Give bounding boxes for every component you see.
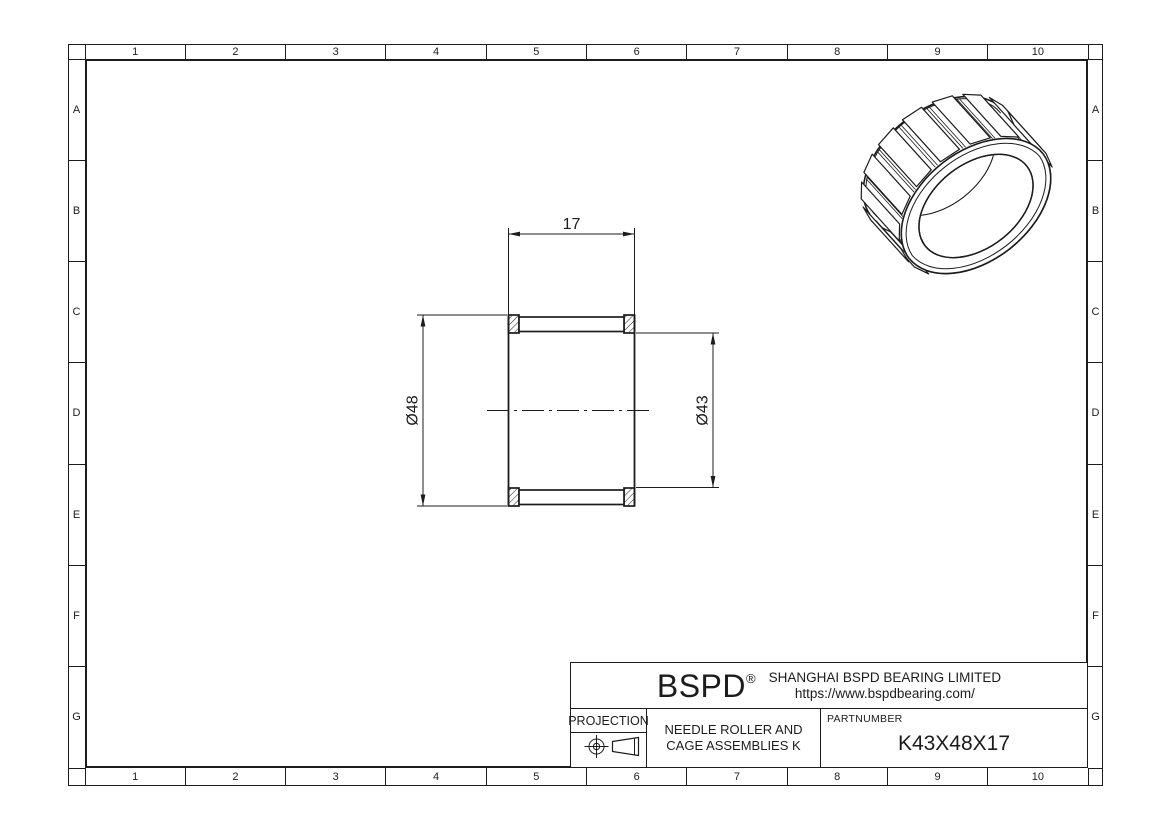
width-dim-text: 17	[563, 216, 581, 233]
company-block: SHANGHAI BSPD BEARING LIMITED https://ww…	[769, 670, 1002, 702]
cage-rail-section	[624, 315, 635, 333]
cage-rail-section	[509, 488, 520, 506]
grid-tick	[1088, 261, 1103, 262]
grid-row-label-right: G	[1088, 667, 1103, 768]
grid-tick	[385, 768, 386, 786]
grid-tick	[68, 464, 85, 465]
arrowhead	[711, 476, 716, 488]
grid-tick	[85, 768, 86, 786]
grid-col-label-bottom: 5	[486, 768, 586, 786]
grid-col-label-top: 6	[587, 44, 687, 59]
grid-col-label-bottom: 8	[787, 768, 887, 786]
title-block: BSPD® SHANGHAI BSPD BEARING LIMITED http…	[570, 662, 1088, 768]
company-website: https://www.bspdbearing.com/	[769, 686, 1002, 702]
cage-rail-section	[624, 488, 635, 506]
arrowhead	[711, 333, 716, 345]
description-line2: CAGE ASSEMBLIES K	[666, 738, 800, 755]
grid-tick	[1088, 59, 1103, 60]
grid-tick	[1088, 666, 1103, 667]
grid-col-label-top: 8	[787, 44, 887, 59]
grid-tick	[68, 666, 85, 667]
grid-col-label-top: 10	[988, 44, 1088, 59]
grid-col-label-top: 7	[687, 44, 787, 59]
grid-tick	[586, 768, 587, 786]
grid-tick	[68, 565, 85, 566]
width-dimension: 17	[509, 216, 635, 315]
grid-tick	[887, 44, 888, 59]
grid-tick	[285, 44, 286, 59]
grid-tick	[1088, 44, 1089, 59]
grid-tick	[1088, 768, 1103, 769]
grid-row-label-left: F	[68, 565, 85, 666]
grid-tick	[185, 768, 186, 786]
grid-row-label-left: G	[68, 667, 85, 768]
arrowhead	[421, 495, 426, 507]
isometric-bearing-view	[845, 75, 1060, 290]
grid-tick	[686, 768, 687, 786]
grid-tick	[385, 44, 386, 59]
partnumber-value: K43X48X17	[821, 732, 1087, 756]
grid-col-label-bottom: 10	[988, 768, 1088, 786]
grid-tick	[1088, 160, 1103, 161]
grid-tick	[85, 44, 86, 59]
grid-row-label-right: A	[1088, 59, 1103, 160]
grid-tick	[486, 768, 487, 786]
grid-col-label-bottom: 9	[887, 768, 987, 786]
partnumber-cell: PARTNUMBER K43X48X17	[821, 709, 1087, 767]
grid-col-label-bottom: 7	[687, 768, 787, 786]
needle-roller-section	[519, 317, 624, 332]
registered-trademark: ®	[746, 671, 756, 686]
grid-col-label-top: 3	[286, 44, 386, 59]
grid-col-label-top: 5	[486, 44, 586, 59]
grid-tick	[586, 44, 587, 59]
arrowhead	[623, 232, 635, 237]
grid-col-label-top: 2	[185, 44, 285, 59]
brand-logo: BSPD®	[657, 670, 756, 702]
grid-tick	[1088, 565, 1103, 566]
grid-tick	[1088, 768, 1089, 786]
grid-col-label-top: 4	[386, 44, 486, 59]
grid-tick	[68, 59, 85, 60]
grid-row-label-left: B	[68, 160, 85, 261]
brand-text: BSPD	[657, 668, 746, 704]
description-line1: NEEDLE ROLLER AND	[665, 722, 803, 739]
grid-row-label-right: E	[1088, 464, 1103, 565]
cage-rail-section	[509, 315, 520, 333]
inner-dia-text: Ø43	[695, 395, 712, 425]
section-view-2d: 17 Ø48 Ø43	[395, 210, 735, 520]
grid-col-label-bottom: 6	[587, 768, 687, 786]
grid-tick	[787, 44, 788, 59]
grid-tick	[285, 768, 286, 786]
arrowhead	[421, 315, 426, 327]
grid-tick	[1088, 362, 1103, 363]
grid-tick	[68, 768, 85, 769]
grid-row-label-left: A	[68, 59, 85, 160]
grid-col-label-bottom: 2	[185, 768, 285, 786]
company-name: SHANGHAI BSPD BEARING LIMITED	[769, 670, 1002, 686]
grid-row-label-right: C	[1088, 262, 1103, 363]
projection-symbol-cell	[571, 733, 646, 767]
grid-tick	[68, 362, 85, 363]
grid-col-label-top: 9	[887, 44, 987, 59]
first-angle-projection-icon	[571, 733, 644, 762]
grid-row-label-right: B	[1088, 160, 1103, 261]
grid-tick	[185, 44, 186, 59]
grid-row-label-right: D	[1088, 363, 1103, 464]
projection-cell: PROJECTION	[571, 709, 647, 767]
grid-col-label-top: 1	[85, 44, 185, 59]
grid-row-label-left: D	[68, 363, 85, 464]
grid-tick	[987, 768, 988, 786]
partnumber-label: PARTNUMBER	[827, 713, 903, 725]
grid-tick	[987, 44, 988, 59]
outer-dia-text: Ø48	[405, 395, 422, 425]
needle-roller-section	[519, 490, 624, 505]
grid-tick	[68, 261, 85, 262]
grid-tick	[68, 160, 85, 161]
grid-tick	[1088, 464, 1103, 465]
grid-row-label-right: F	[1088, 565, 1103, 666]
arrowhead	[509, 232, 521, 237]
grid-row-label-left: E	[68, 464, 85, 565]
title-block-header: BSPD® SHANGHAI BSPD BEARING LIMITED http…	[571, 663, 1087, 709]
projection-label: PROJECTION	[571, 709, 646, 733]
grid-tick	[787, 768, 788, 786]
grid-col-label-bottom: 3	[286, 768, 386, 786]
grid-tick	[686, 44, 687, 59]
part-description: NEEDLE ROLLER AND CAGE ASSEMBLIES K	[647, 709, 821, 767]
grid-tick	[887, 768, 888, 786]
grid-row-label-left: C	[68, 262, 85, 363]
grid-col-label-bottom: 1	[85, 768, 185, 786]
grid-col-label-bottom: 4	[386, 768, 486, 786]
grid-tick	[486, 44, 487, 59]
